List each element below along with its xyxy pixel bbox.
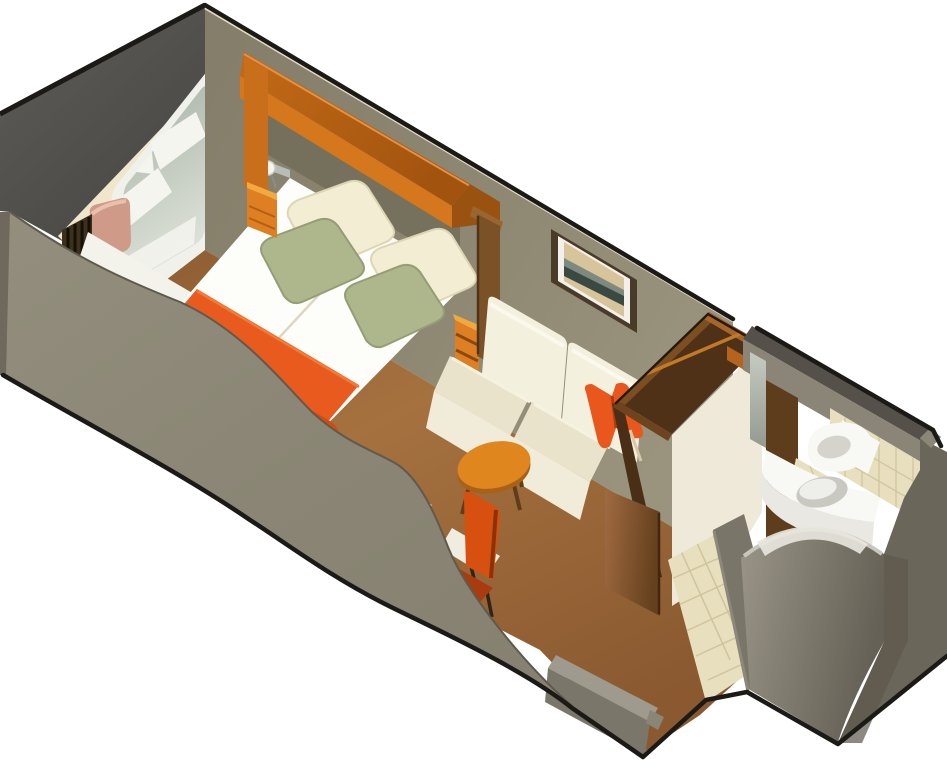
stateroom-svg bbox=[0, 0, 947, 768]
stateroom-cutaway-illustration bbox=[0, 0, 947, 768]
bath-mirror bbox=[750, 352, 766, 448]
canopy-support bbox=[244, 56, 268, 196]
